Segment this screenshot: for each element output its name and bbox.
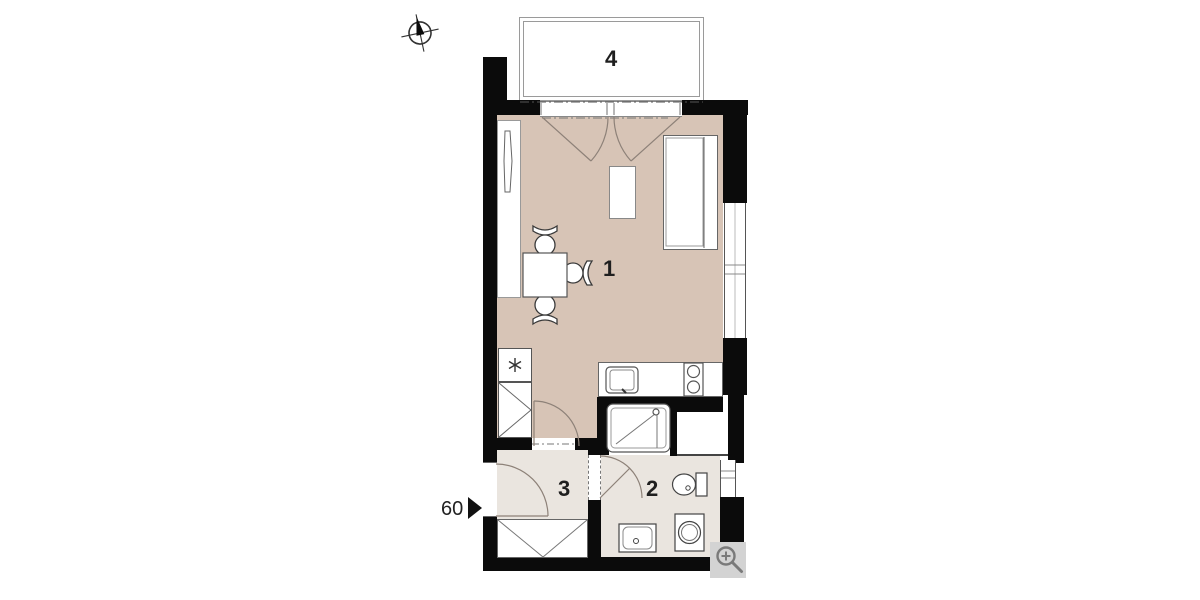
bathroom-floor [601, 455, 720, 557]
wall-segment [670, 397, 677, 456]
bed [663, 135, 718, 250]
wall-segment [483, 557, 712, 571]
wall-segment [597, 397, 723, 412]
room-label-living: 1 [603, 258, 615, 280]
wall-segment [723, 338, 747, 395]
bathroom-door-opening [588, 455, 601, 500]
scale-arrow [468, 497, 482, 519]
compass-north-icon [397, 10, 442, 55]
washer-column-cabinet [498, 348, 532, 382]
floor-plan: 1 2 3 4 60 [0, 0, 1200, 600]
wall-segment [483, 100, 497, 462]
window-small [720, 460, 736, 497]
room-label-hallway: 3 [558, 478, 570, 500]
shower-nook-floor [609, 412, 670, 455]
wall-segment [497, 438, 532, 450]
wall-segment [575, 438, 601, 450]
kitchen-counter [598, 362, 723, 397]
window-main [724, 203, 746, 338]
wardrobe-strip [497, 120, 521, 298]
hall-door-opening [532, 438, 575, 450]
scale-marker-label: 60 [441, 499, 463, 519]
wall-segment [588, 500, 601, 558]
room-label-bathroom: 2 [646, 478, 658, 500]
magnifier-zoom-icon[interactable] [710, 542, 746, 578]
entry-door-opening [483, 462, 497, 517]
storage-cabinet [498, 382, 532, 438]
room-label-balcony: 4 [605, 48, 617, 70]
wall-segment [728, 393, 744, 463]
wall-segment [723, 115, 747, 203]
hall-wardrobe [497, 519, 588, 558]
wall-segment [720, 497, 744, 545]
coffee-table [609, 166, 636, 219]
wall-segment [682, 100, 748, 115]
wall-segment [483, 57, 507, 101]
duct-niche [677, 412, 728, 456]
balcony-door-sill [540, 101, 682, 117]
